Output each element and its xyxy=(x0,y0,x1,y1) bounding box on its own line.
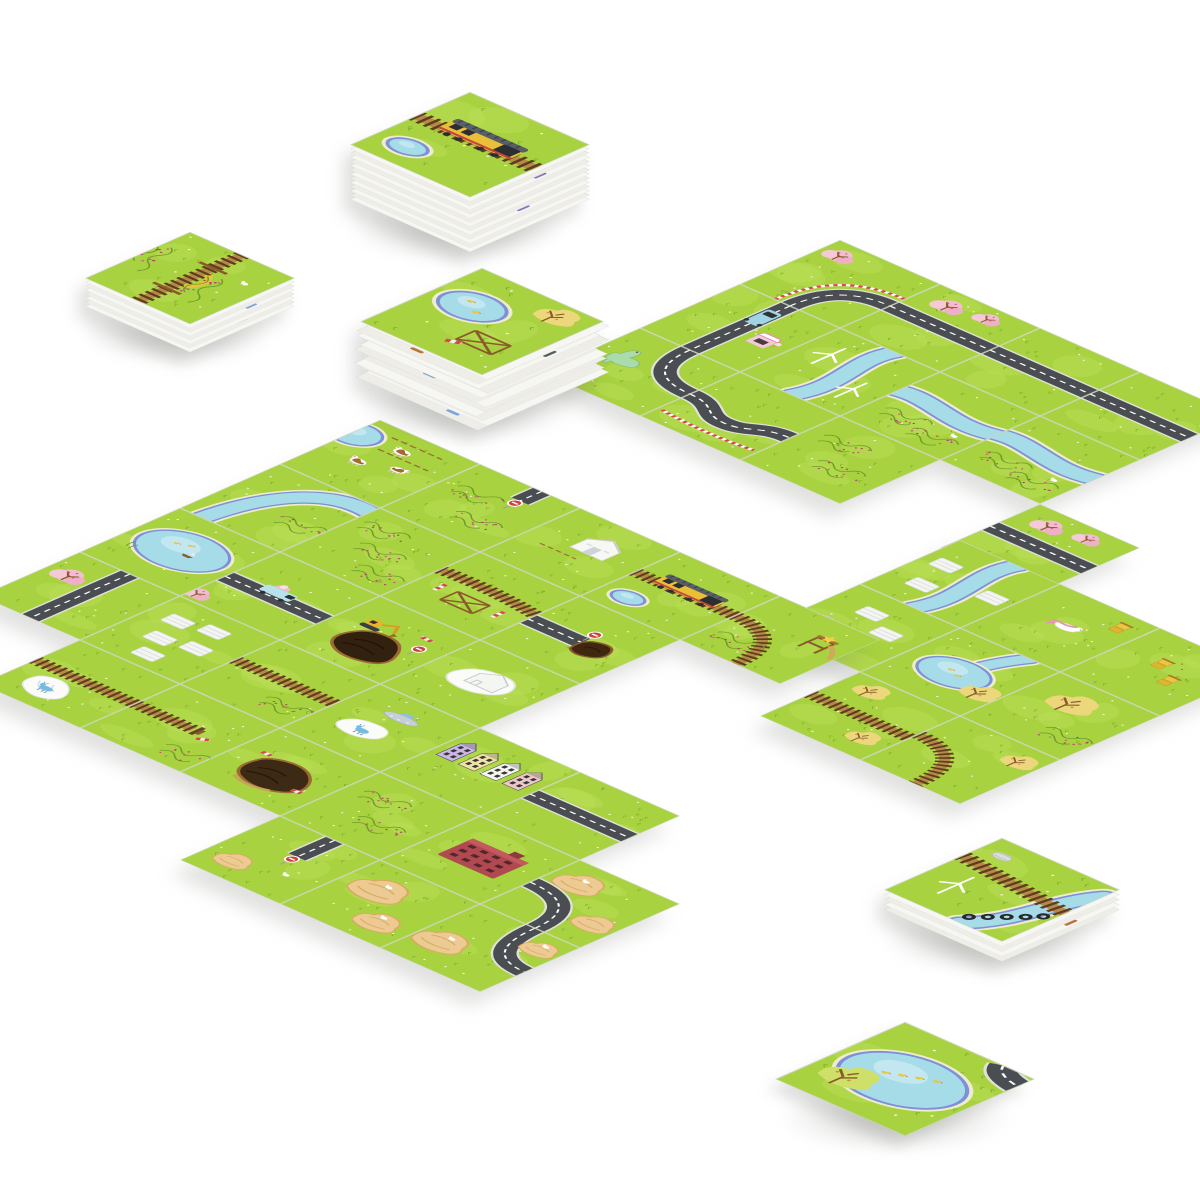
board-game-scene xyxy=(0,0,1200,1200)
